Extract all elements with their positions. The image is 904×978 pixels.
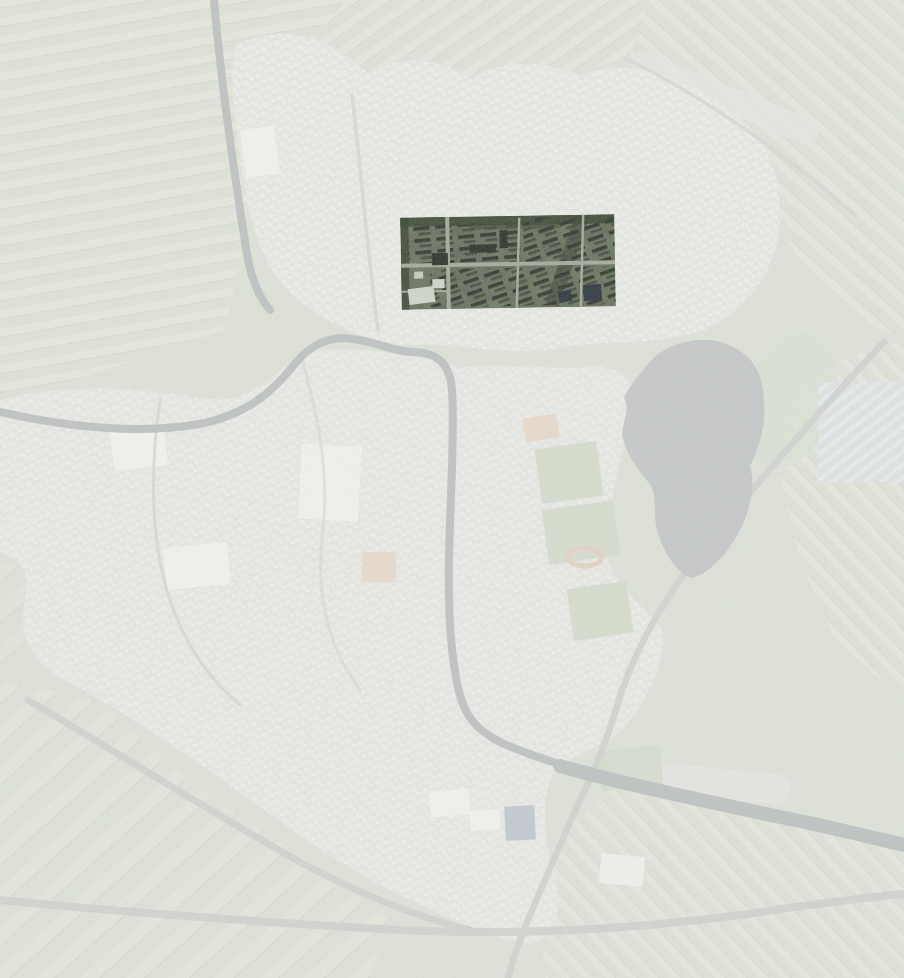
aerial-map-screenshot: Faded aerial photograph of a town with o… <box>0 0 904 978</box>
highlight-region[interactable] <box>400 214 616 310</box>
photo-grain <box>0 0 904 978</box>
aerial-map <box>0 0 904 978</box>
